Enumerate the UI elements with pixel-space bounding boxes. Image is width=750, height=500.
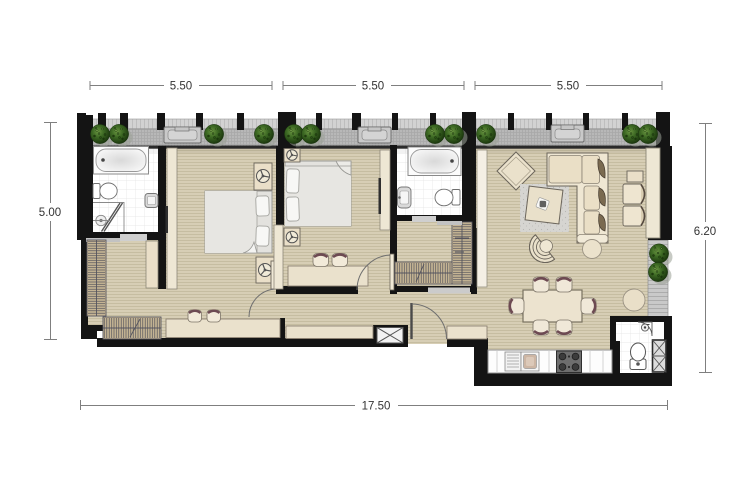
- svg-text:17.50: 17.50: [362, 401, 391, 413]
- svg-text:5.50: 5.50: [557, 81, 579, 93]
- svg-text:5.00: 5.00: [39, 207, 61, 219]
- svg-text:5.50: 5.50: [362, 81, 384, 93]
- svg-text:5.50: 5.50: [170, 81, 192, 93]
- svg-text:6.20: 6.20: [694, 226, 716, 238]
